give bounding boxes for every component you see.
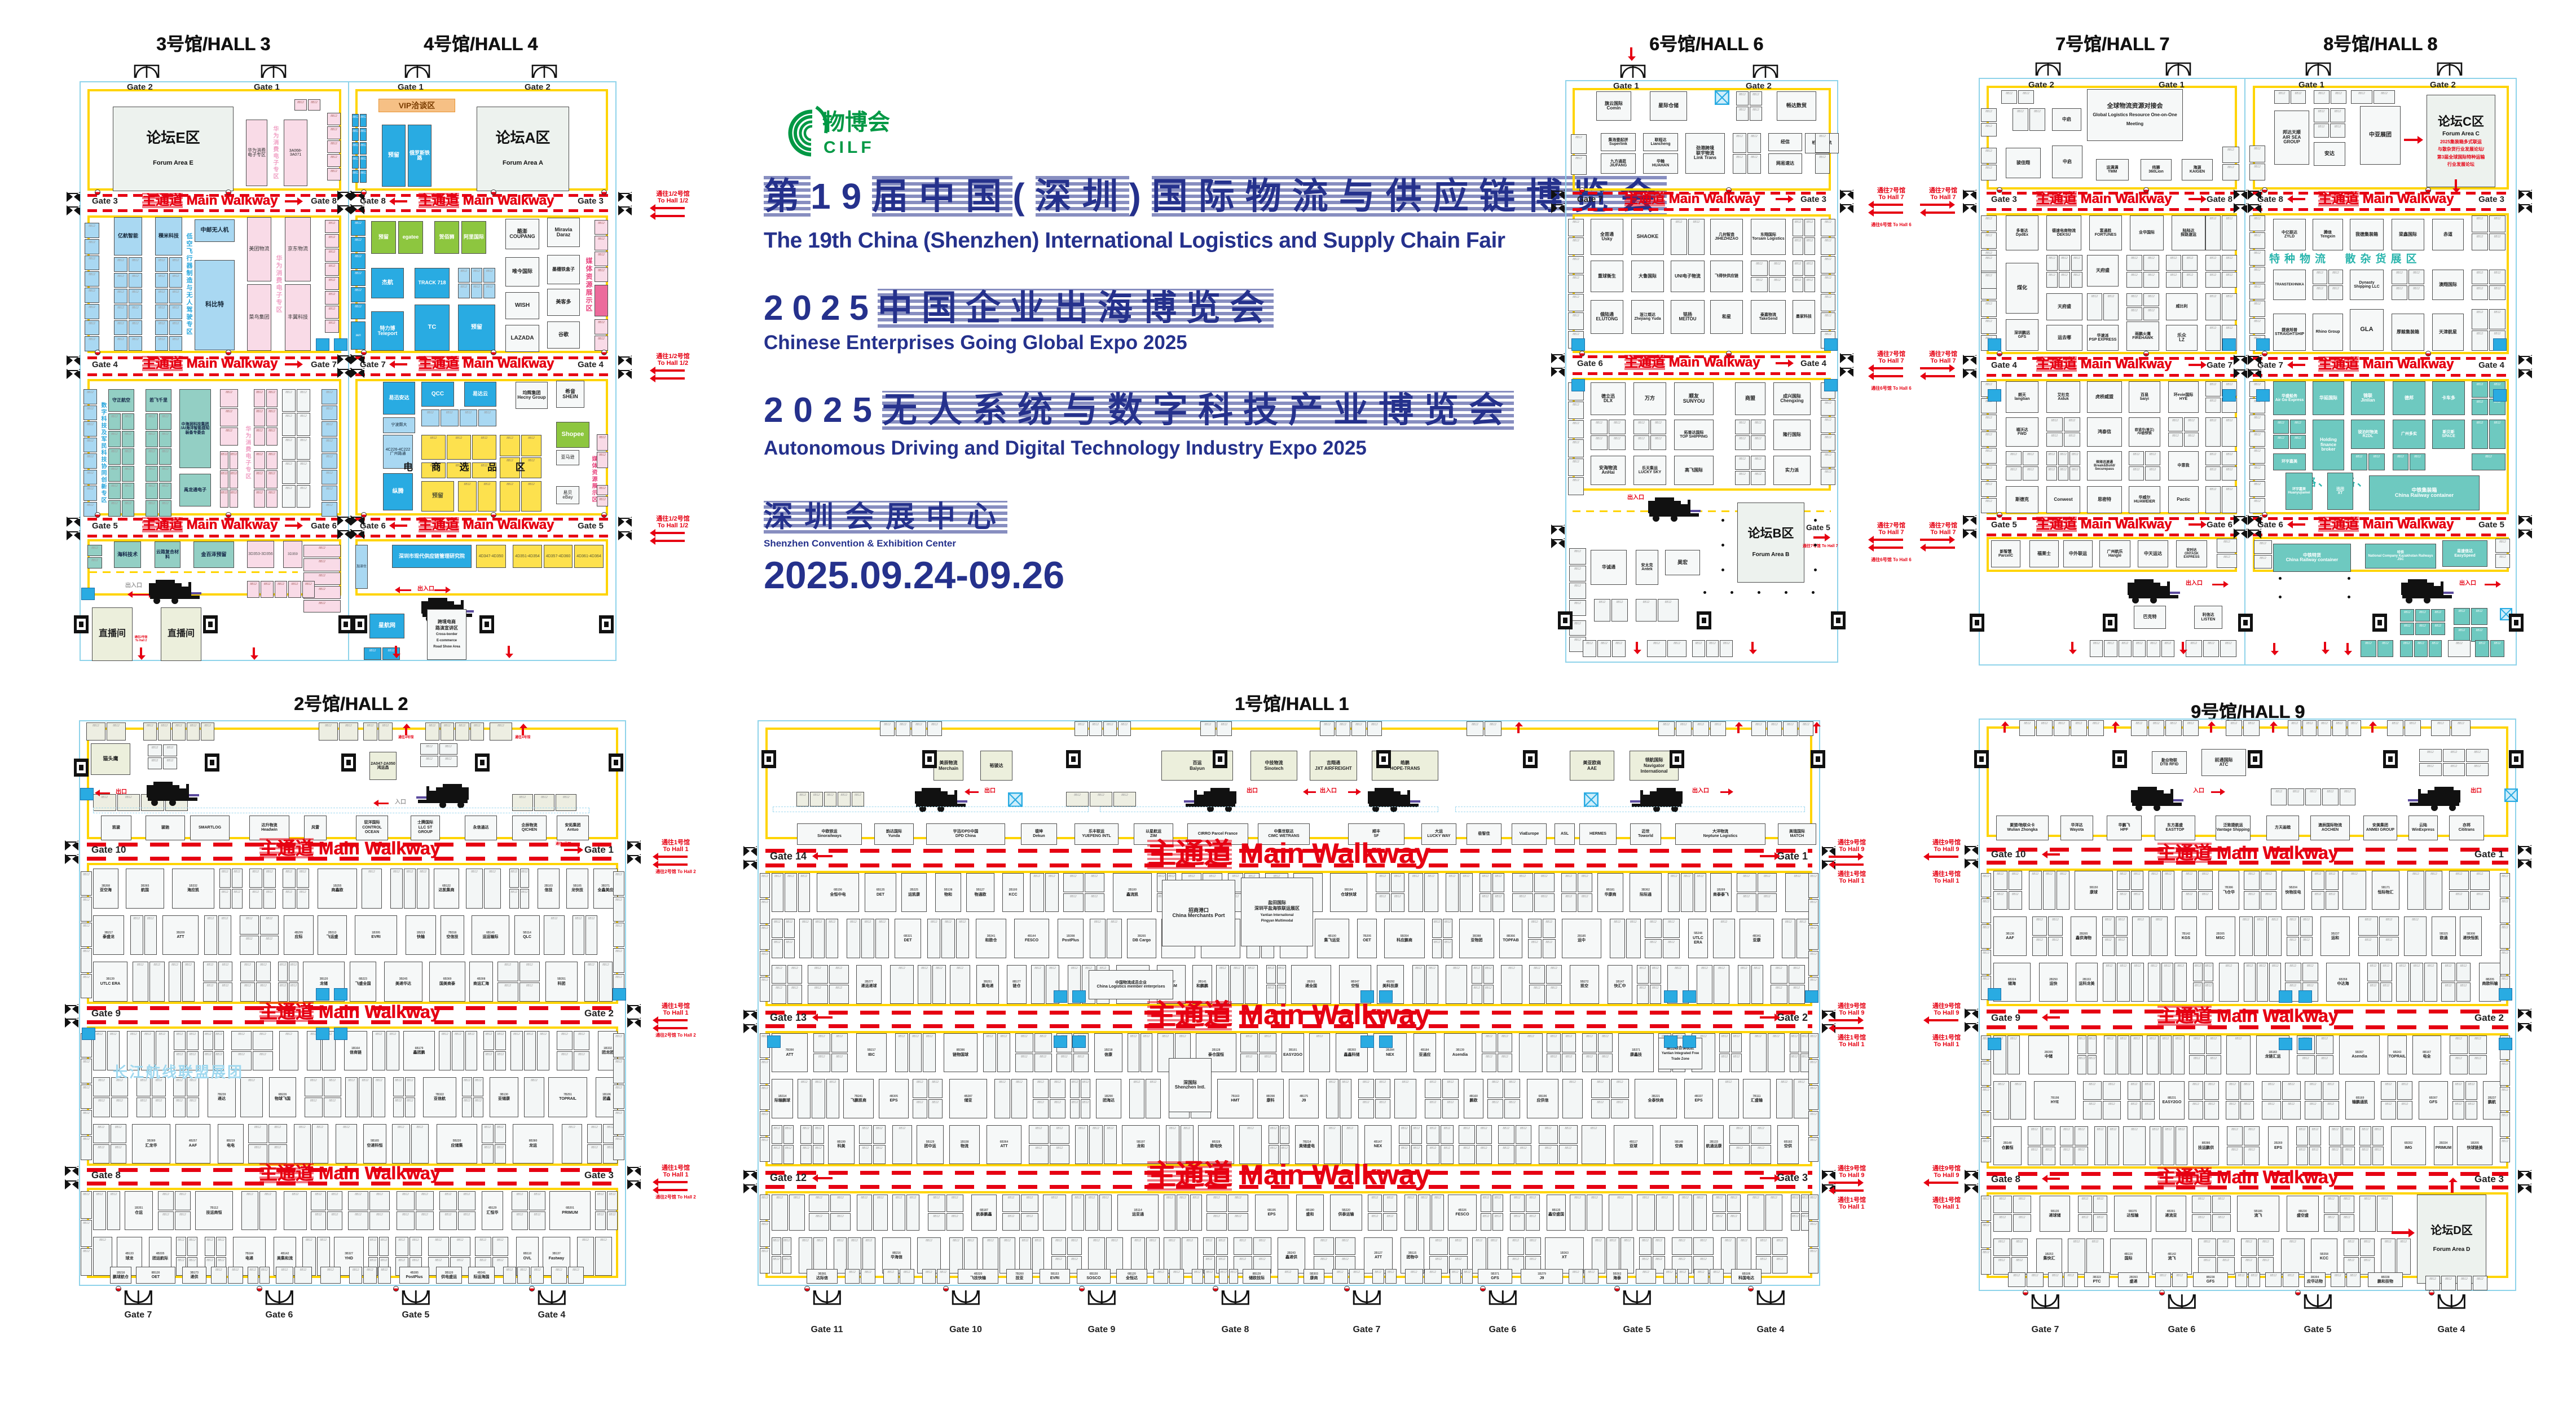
svg-text:物博会: 物博会 (822, 110, 890, 135)
svg-text:CILF: CILF (824, 138, 875, 157)
